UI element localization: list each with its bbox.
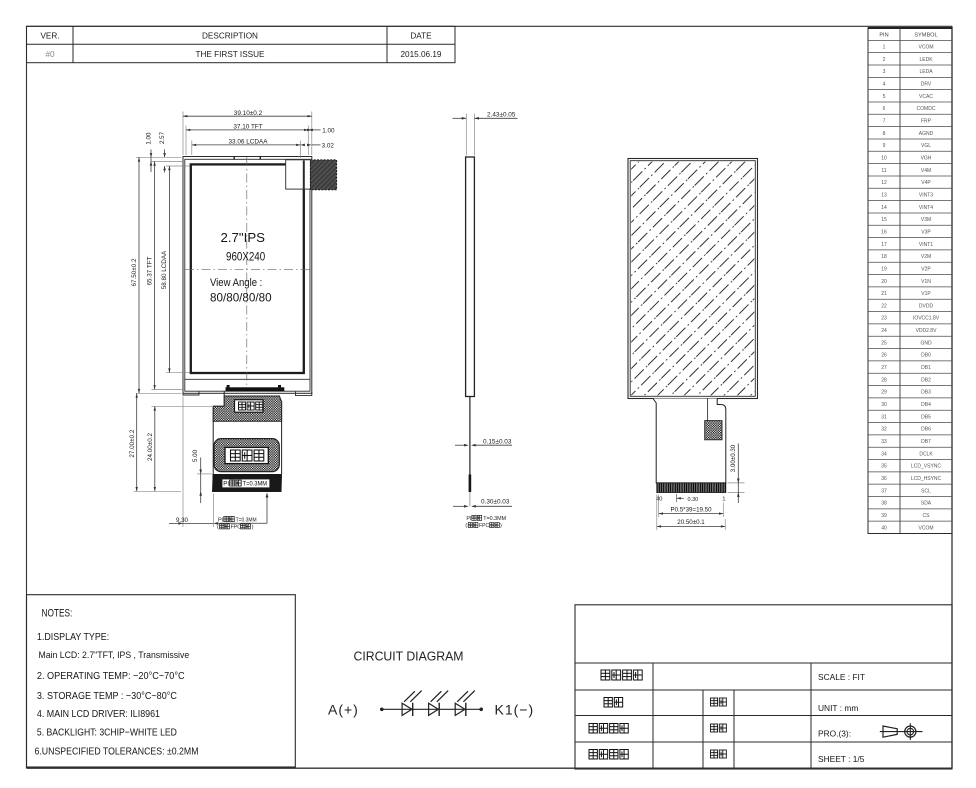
svg-text:#0: #0 — [45, 50, 55, 59]
svg-text:DCLK: DCLK — [919, 451, 933, 457]
svg-text:39: 39 — [881, 513, 887, 519]
svg-text:4. MAIN LCD DRIVER: ILI8961: 4. MAIN LCD DRIVER: ILI8961 — [37, 709, 160, 720]
svg-text:24: 24 — [881, 328, 887, 334]
svg-text:PI: PI — [466, 516, 471, 522]
svg-text:3. STORAGE TEMP : −30°C~80°C: 3. STORAGE TEMP : −30°C~80°C — [37, 691, 177, 702]
svg-text:40: 40 — [881, 525, 887, 531]
svg-text:VER.: VER. — [40, 32, 59, 41]
svg-text:38: 38 — [881, 501, 887, 507]
svg-text:UNIT : mm: UNIT : mm — [818, 703, 858, 713]
svg-text:1.DISPLAY TYPE:: 1.DISPLAY TYPE: — [37, 632, 109, 643]
svg-text:12: 12 — [881, 180, 887, 186]
svg-text:1.00: 1.00 — [322, 128, 335, 135]
svg-text:T=0.3MM: T=0.3MM — [243, 481, 268, 488]
svg-text:PIN: PIN — [879, 32, 888, 38]
svg-text:DB6: DB6 — [921, 427, 931, 433]
svg-text:2: 2 — [883, 57, 886, 63]
svg-text:COMDC: COMDC — [917, 106, 936, 112]
svg-text:3.02: 3.02 — [322, 143, 335, 150]
svg-text:20.50±0.1: 20.50±0.1 — [677, 519, 705, 526]
svg-text:15: 15 — [881, 217, 887, 223]
svg-text:SCL: SCL — [921, 488, 931, 494]
svg-text:1.00: 1.00 — [145, 132, 152, 145]
svg-text:11: 11 — [881, 168, 886, 174]
svg-text:8: 8 — [883, 131, 886, 137]
svg-text:IOVCC1.8V: IOVCC1.8V — [913, 316, 940, 322]
svg-text:LCD_VSYNC: LCD_VSYNC — [911, 464, 941, 470]
svg-text:VGH: VGH — [921, 155, 932, 161]
svg-text:VCOM: VCOM — [919, 525, 934, 531]
svg-text:24.00±0.2: 24.00±0.2 — [147, 433, 154, 461]
svg-text:1: 1 — [722, 497, 725, 503]
svg-text:T=0.3MM: T=0.3MM — [236, 517, 257, 523]
svg-text:PI: PI — [218, 517, 224, 523]
svg-text:2.57: 2.57 — [159, 131, 166, 144]
svg-text:V4M: V4M — [921, 168, 931, 174]
svg-text:32: 32 — [881, 427, 887, 433]
svg-text:V1P: V1P — [921, 291, 931, 297]
svg-text:27: 27 — [881, 365, 887, 371]
svg-text:View Angle :: View Angle : — [210, 277, 262, 289]
svg-text:THE FIRST ISSUE: THE FIRST ISSUE — [196, 50, 266, 59]
svg-text:VDD2.8V: VDD2.8V — [916, 328, 938, 334]
svg-text:K1(−): K1(−) — [495, 702, 535, 718]
svg-text:DB7: DB7 — [921, 439, 931, 445]
svg-text:0.30: 0.30 — [688, 497, 699, 503]
svg-text:37: 37 — [881, 488, 887, 494]
svg-text:DB2: DB2 — [921, 377, 931, 383]
svg-text:PRO.(3):: PRO.(3): — [818, 729, 851, 739]
svg-text:5. BACKLIGHT: 3CHIP−WHITE LED: 5. BACKLIGHT: 3CHIP−WHITE LED — [37, 728, 177, 739]
svg-text:13: 13 — [881, 192, 887, 198]
svg-text:16: 16 — [881, 229, 887, 235]
svg-text:SHEET : 1/5: SHEET : 1/5 — [818, 754, 865, 764]
svg-text:10: 10 — [881, 155, 887, 161]
svg-text:NOTES:: NOTES: — [42, 608, 73, 620]
svg-text:58.80 LCDAA: 58.80 LCDAA — [161, 250, 168, 289]
svg-text:DB4: DB4 — [921, 402, 931, 408]
svg-text:3: 3 — [883, 69, 886, 75]
svg-text:DB0: DB0 — [921, 353, 931, 359]
svg-text:LCD_HSYNC: LCD_HSYNC — [911, 476, 942, 482]
svg-text:14: 14 — [881, 205, 887, 211]
svg-text:(: ( — [465, 523, 467, 529]
svg-text:36: 36 — [881, 476, 887, 482]
svg-text:19: 19 — [881, 266, 887, 272]
svg-text:5.00: 5.00 — [192, 449, 199, 462]
svg-text:SDA: SDA — [921, 501, 932, 507]
svg-text:67.50±0.2: 67.50±0.2 — [131, 258, 138, 286]
svg-text:2.7"IPS: 2.7"IPS — [221, 231, 266, 245]
svg-text:65.37 TFT: 65.37 TFT — [147, 256, 154, 285]
svg-text:FRP: FRP — [921, 118, 932, 124]
svg-text:DATE: DATE — [410, 32, 432, 41]
svg-text:39.10±0.2: 39.10±0.2 — [234, 110, 263, 117]
svg-text:0.15±0.03: 0.15±0.03 — [483, 438, 512, 445]
svg-text:9.30: 9.30 — [176, 517, 189, 524]
svg-text:FPC: FPC — [231, 525, 242, 531]
svg-text:VGL: VGL — [921, 143, 931, 149]
svg-text:DVDD: DVDD — [919, 303, 934, 309]
svg-text:7: 7 — [883, 118, 886, 124]
svg-text:DB3: DB3 — [921, 390, 931, 396]
svg-text:3.00±0.30: 3.00±0.30 — [730, 444, 737, 472]
svg-text:4: 4 — [883, 81, 886, 87]
svg-text:960X240: 960X240 — [226, 249, 265, 263]
svg-text:(: ( — [217, 525, 219, 531]
svg-text:P0.5*39=19.50: P0.5*39=19.50 — [670, 507, 712, 514]
svg-text:80/80/80/80: 80/80/80/80 — [210, 292, 272, 305]
svg-text:2. OPERATING TEMP: −20°C~70°C: 2. OPERATING TEMP: −20°C~70°C — [37, 671, 185, 682]
svg-text:23: 23 — [881, 316, 887, 322]
svg-text:35: 35 — [881, 464, 887, 470]
svg-text:VINT4: VINT4 — [919, 205, 933, 211]
svg-text:V1N: V1N — [921, 279, 931, 285]
svg-text:LEDA: LEDA — [919, 69, 933, 75]
svg-text:DESCRIPTION: DESCRIPTION — [202, 32, 258, 41]
svg-text:PI: PI — [223, 481, 229, 488]
svg-text:): ) — [500, 523, 502, 529]
svg-text:21: 21 — [881, 291, 887, 297]
svg-text:34: 34 — [881, 451, 887, 457]
svg-text:V2M: V2M — [921, 254, 931, 260]
svg-text:22: 22 — [881, 303, 887, 309]
svg-text:26: 26 — [881, 353, 887, 359]
svg-text:V3P: V3P — [921, 229, 931, 235]
svg-text:6.UNSPECIFIED TOLERANCES: ±0.2: 6.UNSPECIFIED TOLERANCES: ±0.2MM — [35, 747, 199, 758]
svg-text:VCAC: VCAC — [919, 94, 933, 100]
svg-text:GND: GND — [920, 340, 932, 346]
svg-text:V3M: V3M — [921, 217, 931, 223]
svg-text:A(+): A(+) — [328, 702, 359, 718]
svg-text:9: 9 — [883, 143, 886, 149]
svg-text:20: 20 — [881, 279, 887, 285]
svg-text:33: 33 — [881, 439, 887, 445]
svg-text:LEDK: LEDK — [919, 57, 933, 63]
svg-text:37.10 TFT: 37.10 TFT — [233, 124, 262, 131]
svg-text:): ) — [252, 525, 254, 531]
svg-text:1: 1 — [883, 44, 886, 50]
svg-text:DRV: DRV — [921, 81, 932, 87]
svg-text:T=0.3MM: T=0.3MM — [483, 516, 506, 522]
svg-text:25: 25 — [881, 340, 887, 346]
svg-text:2015.06.19: 2015.06.19 — [401, 50, 442, 59]
svg-text:28: 28 — [881, 377, 887, 383]
svg-text:31: 31 — [881, 414, 887, 420]
svg-text:SYMBOL: SYMBOL — [914, 32, 937, 38]
svg-text:V2P: V2P — [921, 266, 931, 272]
svg-text:2.43±0.05: 2.43±0.05 — [487, 111, 516, 118]
svg-text:DB5: DB5 — [921, 414, 931, 420]
svg-text:CS: CS — [923, 513, 931, 519]
svg-text:33.06 LCDAA: 33.06 LCDAA — [228, 139, 268, 146]
svg-text:DB1: DB1 — [921, 365, 931, 371]
svg-text:Main LCD: 2.7"TFT, IPS , Tran: Main LCD: 2.7"TFT, IPS , Transmissive — [39, 650, 190, 661]
svg-text:29: 29 — [881, 390, 887, 396]
svg-text:17: 17 — [881, 242, 887, 248]
svg-text:VCOM: VCOM — [919, 44, 934, 50]
svg-text:VINT3: VINT3 — [919, 192, 933, 198]
svg-text:6: 6 — [883, 106, 886, 112]
svg-text:V4P: V4P — [921, 180, 931, 186]
svg-text:27.00±0.2: 27.00±0.2 — [129, 429, 136, 457]
svg-text:30: 30 — [881, 402, 887, 408]
svg-text:CIRCUIT DIAGRAM: CIRCUIT DIAGRAM — [354, 649, 464, 664]
svg-text:FPC: FPC — [479, 523, 490, 529]
svg-text:5: 5 — [883, 94, 886, 100]
svg-text:VINT1: VINT1 — [919, 242, 933, 248]
svg-text:AGND: AGND — [919, 131, 934, 137]
svg-text:0.30±0.03: 0.30±0.03 — [481, 499, 510, 506]
svg-text:18: 18 — [881, 254, 887, 260]
svg-text:SCALE : FIT: SCALE : FIT — [818, 672, 865, 682]
